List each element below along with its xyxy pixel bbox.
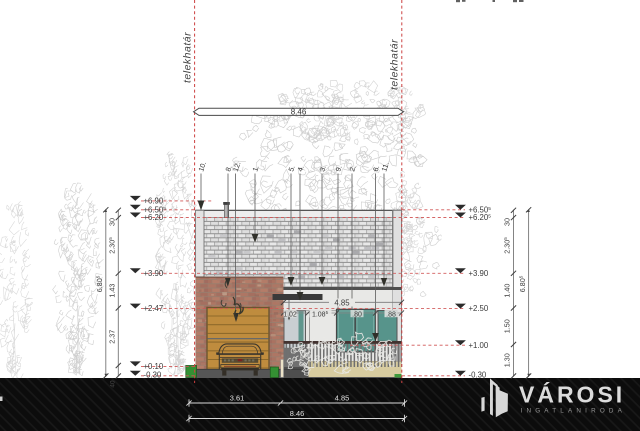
svg-text:8.46: 8.46 [290, 409, 304, 418]
svg-text:+2.50: +2.50 [469, 304, 489, 313]
svg-text:1.02: 1.02 [283, 311, 297, 318]
svg-text:.88: .88 [386, 311, 396, 318]
svg-text:4.85: 4.85 [335, 394, 349, 403]
svg-text:+3.90: +3.90 [469, 269, 489, 278]
svg-text:+3.90: +3.90 [144, 269, 164, 278]
svg-text:.80: .80 [352, 311, 362, 318]
svg-text:-0.30: -0.30 [144, 370, 162, 379]
svg-text:30: 30 [503, 218, 512, 226]
svg-text:INGATLANIRODA: INGATLANIRODA [521, 408, 627, 415]
svg-text:1.30: 1.30 [503, 353, 512, 367]
svg-text:2.37: 2.37 [108, 330, 117, 344]
svg-text:+6.205: +6.205 [469, 213, 492, 222]
svg-text:40: 40 [110, 380, 117, 388]
svg-text:8.46: 8.46 [291, 108, 307, 117]
svg-text:+1.00: +1.00 [469, 341, 489, 350]
svg-text:telekhatár: telekhatár [182, 32, 194, 83]
svg-text:1.40: 1.40 [503, 284, 512, 298]
svg-text:4.85: 4.85 [334, 299, 350, 308]
svg-text:+6.90: +6.90 [144, 197, 164, 206]
svg-text:VÁROSI: VÁROSI [519, 381, 625, 408]
svg-text:3.61: 3.61 [230, 394, 244, 403]
svg-text:1.50: 1.50 [503, 319, 512, 333]
svg-text:30: 30 [108, 218, 117, 226]
svg-text:+2.47: +2.47 [144, 304, 164, 313]
svg-text:telekhatár: telekhatár [389, 39, 401, 90]
svg-text:+6.20: +6.20 [144, 213, 164, 222]
svg-text:-0.30: -0.30 [469, 370, 487, 379]
svg-text:1.43: 1.43 [108, 284, 117, 298]
